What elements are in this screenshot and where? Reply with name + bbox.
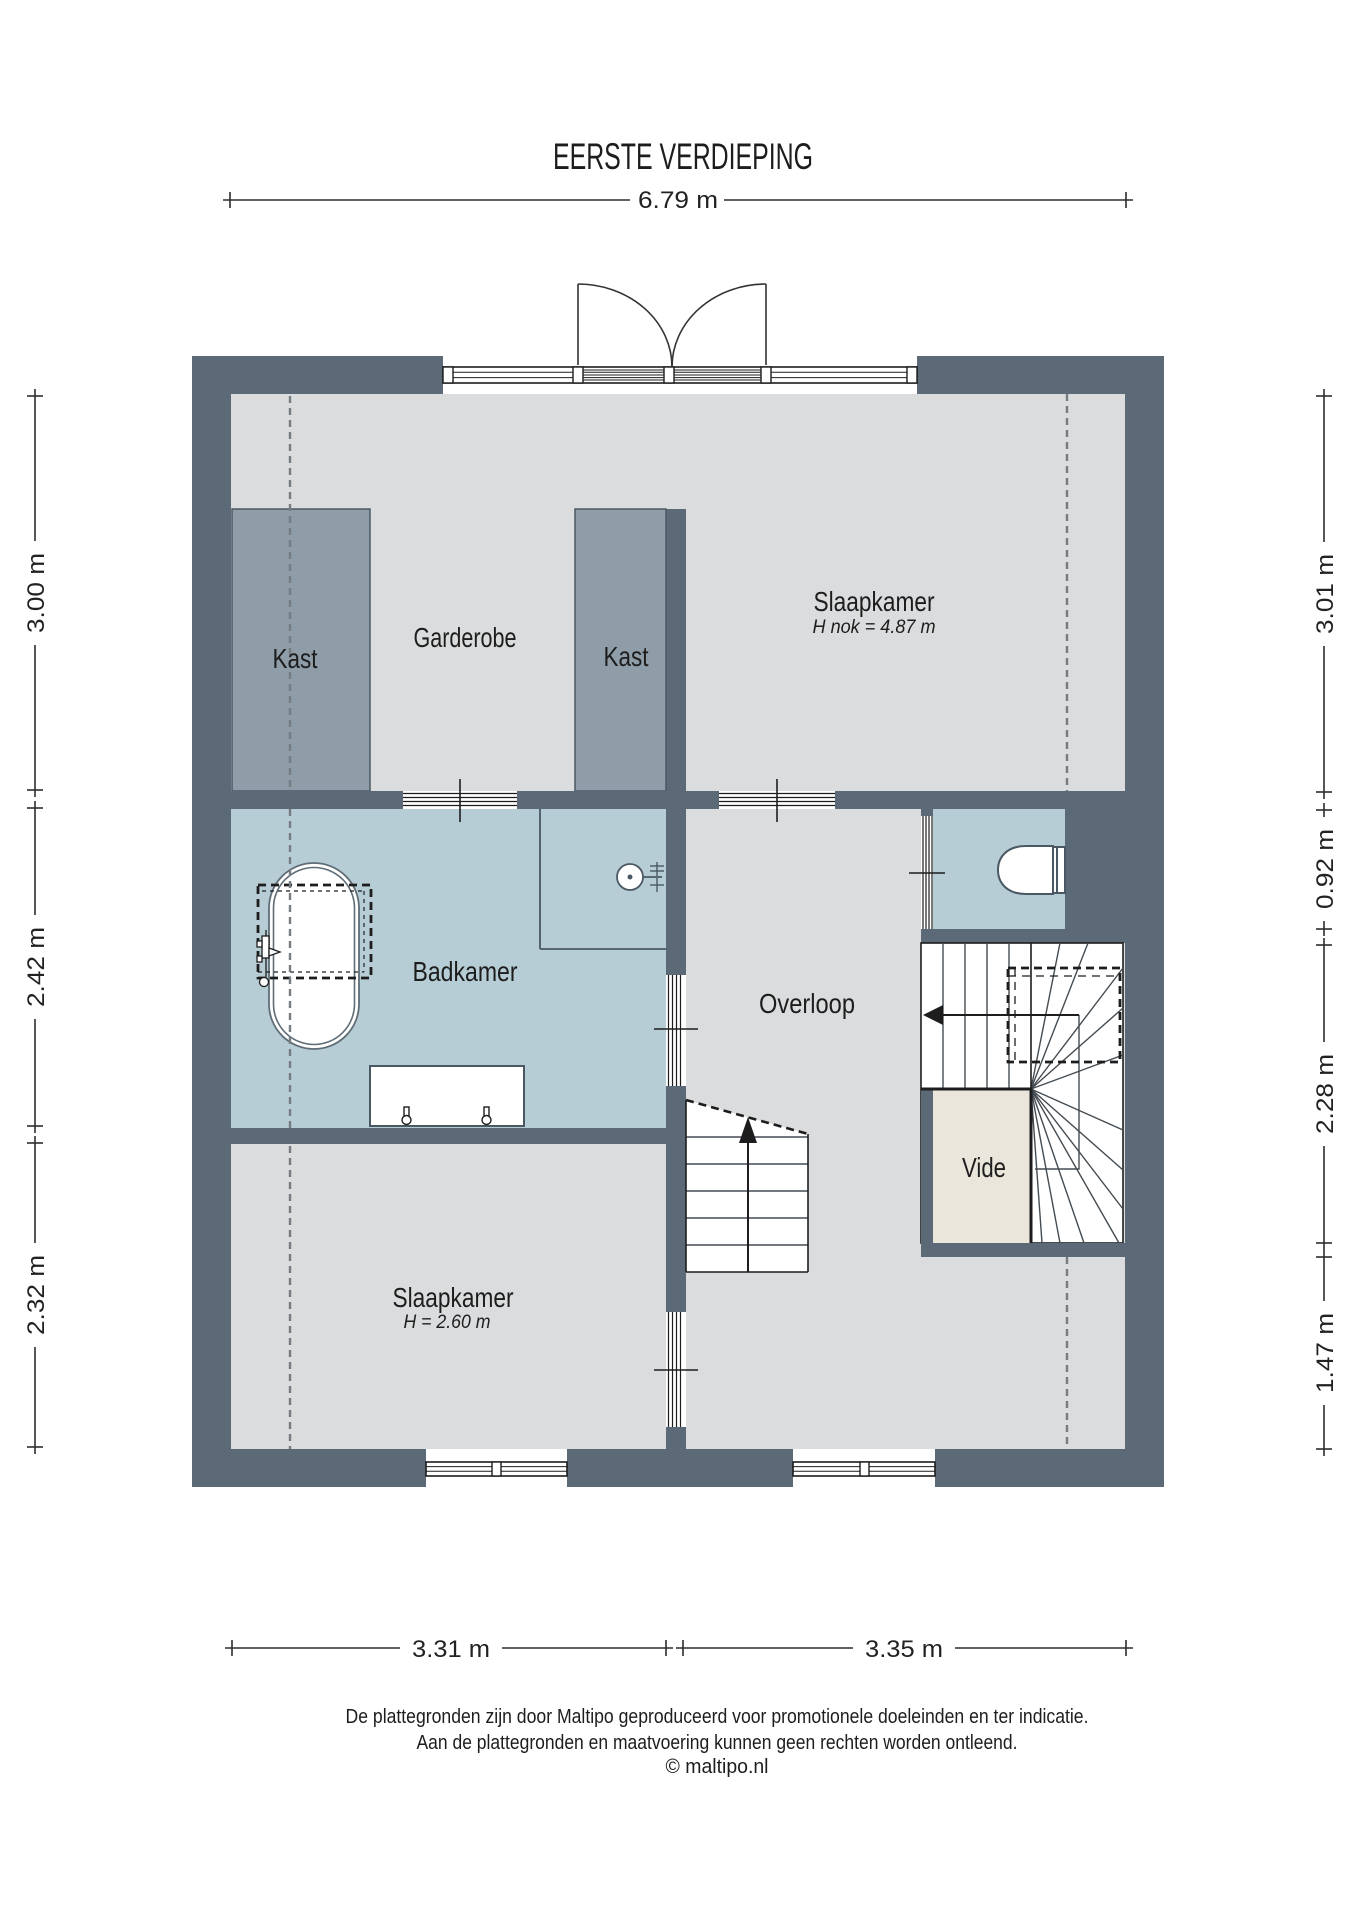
svg-text:3.31 m: 3.31 m bbox=[412, 1636, 490, 1663]
svg-text:Vide: Vide bbox=[962, 1152, 1006, 1183]
svg-text:Aan de plattegronden en maatvo: Aan de plattegronden en maatvoering kunn… bbox=[417, 1732, 1018, 1754]
svg-text:1.47 m: 1.47 m bbox=[1312, 1313, 1339, 1393]
svg-text:Overloop: Overloop bbox=[759, 988, 855, 1019]
svg-text:Kast: Kast bbox=[273, 643, 318, 674]
svg-text:Slaapkamer: Slaapkamer bbox=[814, 586, 935, 617]
svg-text:© maltipo.nl: © maltipo.nl bbox=[666, 1756, 769, 1778]
svg-text:Badkamer: Badkamer bbox=[413, 956, 518, 987]
svg-text:2.28 m: 2.28 m bbox=[1312, 1054, 1339, 1134]
svg-text:Garderobe: Garderobe bbox=[414, 622, 517, 653]
svg-text:0.92 m: 0.92 m bbox=[1312, 829, 1339, 909]
svg-text:Kast: Kast bbox=[604, 641, 649, 672]
svg-text:2.32 m: 2.32 m bbox=[23, 1255, 50, 1335]
svg-text:3.01 m: 3.01 m bbox=[1312, 554, 1339, 634]
svg-text:6.79 m: 6.79 m bbox=[638, 187, 718, 214]
svg-text:EERSTE VERDIEPING: EERSTE VERDIEPING bbox=[553, 136, 813, 177]
svg-text:3.00 m: 3.00 m bbox=[23, 553, 50, 633]
svg-text:H = 2.60 m: H = 2.60 m bbox=[404, 1312, 491, 1333]
svg-text:3.35 m: 3.35 m bbox=[865, 1636, 943, 1663]
svg-text:H nok = 4.87 m: H nok = 4.87 m bbox=[813, 617, 936, 638]
svg-text:De plattegronden zijn door Mal: De plattegronden zijn door Maltipo gepro… bbox=[346, 1706, 1089, 1728]
svg-text:2.42 m: 2.42 m bbox=[23, 927, 50, 1007]
svg-text:Slaapkamer: Slaapkamer bbox=[393, 1282, 514, 1313]
